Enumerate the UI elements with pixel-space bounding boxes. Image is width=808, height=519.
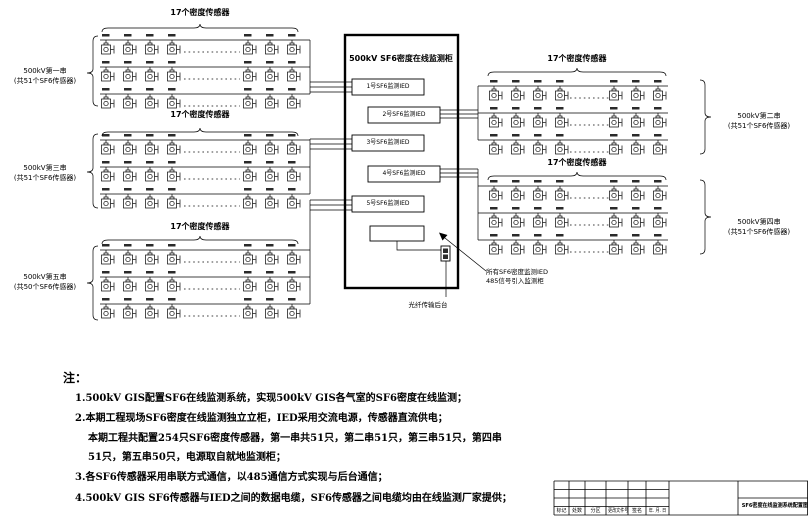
sf6-sensor-icon [124, 88, 137, 108]
sf6-sensor-icon [610, 207, 623, 227]
comm-box [370, 226, 424, 241]
sf6-sensor-icon [654, 234, 667, 254]
sf6-sensor-icon [124, 61, 137, 81]
drawing-sheet: 17个密度传感器 17个密度传感器 17个密度传感器 17个密度传感器 17个密… [0, 0, 808, 519]
fiber-note: 光纤传输后台 [394, 299, 462, 309]
sf6-sensor-icon [244, 188, 257, 208]
sf6-sensor-icon [654, 134, 667, 154]
ied-3-label: 3号SF6监测IED [352, 135, 424, 151]
group-1-count: (共51个SF6传感器) [2, 76, 88, 86]
note-line-2c: 51只，第五串50只，电源取自就地监测柜； [88, 448, 286, 463]
drawing-title: SF6密度在线监测系统配置图 [742, 498, 805, 514]
sf6-sensor-icon [244, 134, 257, 154]
sf6-sensor-icon [266, 161, 279, 181]
sf6-sensor-icon [610, 107, 623, 127]
sf6-sensor-icon [512, 234, 525, 254]
side-brace [87, 246, 98, 320]
sf6-sensor-icon [168, 161, 181, 181]
note-line-1: 1.500kV GIS配置SF6在线监测系统，实现500kV GIS各气室的SF… [75, 389, 467, 404]
sf6-sensor-icon [124, 298, 137, 318]
ied-4-label: 4号SF6监测IED [368, 166, 440, 182]
sf6-sensor-icon [490, 107, 503, 127]
sensor-group-5 [87, 200, 352, 320]
sf6-sensor-icon [490, 134, 503, 154]
group-3-count: (共51个SF6传感器) [2, 173, 88, 183]
group-1-top-label: 17个密度传感器 [150, 7, 250, 18]
group-4-name: 500kV第四串 [714, 217, 804, 227]
group-4-count: (共51个SF6传感器) [714, 227, 804, 237]
sf6-sensor-icon [632, 80, 645, 100]
sf6-sensor-icon [632, 180, 645, 200]
sf6-sensor-icon [244, 271, 257, 291]
top-brace [488, 68, 666, 76]
group-2-top-label: 17个密度传感器 [527, 53, 627, 64]
sf6-sensor-icon [244, 161, 257, 181]
note-line-3: 3.各SF6传感器采用串联方式通信，以485通信方式实现与后台通信； [75, 468, 388, 483]
converter-mark [443, 255, 448, 260]
sf6-sensor-icon [632, 134, 645, 154]
sf6-sensor-icon [512, 180, 525, 200]
sf6-sensor-icon [266, 134, 279, 154]
sf6-sensor-icon [102, 88, 115, 108]
sf6-sensor-icon [146, 34, 159, 54]
sf6-sensor-icon [632, 234, 645, 254]
sensor-group-2 [440, 68, 711, 154]
top-brace [102, 24, 298, 32]
sensor-group-4 [440, 169, 711, 254]
sf6-sensor-icon [610, 180, 623, 200]
sf6-sensor-icon [490, 207, 503, 227]
sf6-sensor-icon [556, 180, 569, 200]
sensor-group-3 [87, 128, 352, 208]
titleblock-col-zone: 分区 [585, 507, 606, 516]
sf6-sensor-icon [288, 34, 301, 54]
group-5-top-label: 17个密度传感器 [150, 221, 250, 232]
titleblock-col-sign: 签名 [628, 507, 646, 516]
cabinet-title: 500kV SF6密度在线监测柜 [347, 53, 455, 64]
titleblock-col-qty: 处数 [569, 507, 585, 516]
group-5-count: (共50个SF6传感器) [2, 282, 88, 292]
sf6-sensor-icon [266, 188, 279, 208]
sf6-sensor-icon [534, 207, 547, 227]
annotation-line-2: 485信号引入监测柜 [486, 275, 544, 285]
sf6-sensor-icon [288, 298, 301, 318]
group-3-top-label: 17个密度传感器 [150, 109, 250, 120]
sf6-sensor-icon [102, 244, 115, 264]
group-5-name: 500kV第五串 [2, 272, 88, 282]
sf6-sensor-icon [102, 34, 115, 54]
sf6-sensor-icon [556, 107, 569, 127]
group-2-name: 500kV第二串 [714, 111, 804, 121]
sf6-sensor-icon [288, 161, 301, 181]
sf6-sensor-icon [266, 244, 279, 264]
sf6-sensor-icon [632, 207, 645, 227]
sf6-sensor-icon [146, 134, 159, 154]
sf6-sensor-icon [534, 80, 547, 100]
sf6-sensor-icon [146, 88, 159, 108]
group-4-top-label: 17个密度传感器 [527, 157, 627, 168]
sf6-sensor-icon [534, 234, 547, 254]
sf6-sensor-icon [654, 107, 667, 127]
sf6-sensor-icon [168, 271, 181, 291]
sf6-sensor-icon [146, 244, 159, 264]
sf6-sensor-icon [512, 207, 525, 227]
sf6-sensor-icon [288, 244, 301, 264]
sf6-sensor-icon [288, 271, 301, 291]
note-line-4: 4.500kV GIS SF6传感器与IED之间的数据电缆，SF6传感器之间电缆… [75, 489, 512, 504]
side-brace [87, 36, 98, 106]
top-brace [488, 172, 666, 180]
sf6-sensor-icon [124, 134, 137, 154]
sf6-sensor-icon [610, 80, 623, 100]
sf6-sensor-icon [168, 134, 181, 154]
sf6-sensor-icon [610, 234, 623, 254]
side-brace [700, 180, 711, 254]
converter-mark [443, 249, 448, 254]
sf6-sensor-icon [244, 34, 257, 54]
sf6-sensor-icon [512, 80, 525, 100]
sf6-sensor-icon [654, 180, 667, 200]
sf6-sensor-icon [102, 271, 115, 291]
sf6-sensor-icon [288, 61, 301, 81]
ied-5-label: 5号SF6监测IED [352, 196, 424, 212]
sf6-sensor-icon [288, 88, 301, 108]
notes-heading: 注： [63, 369, 87, 386]
sf6-sensor-icon [266, 298, 279, 318]
note-line-2b: 本期工程共配置254只SF6密度传感器，第一串共51只，第二串51只，第三串51… [88, 429, 502, 444]
sf6-sensor-icon [490, 180, 503, 200]
sf6-sensor-icon [556, 134, 569, 154]
sf6-sensor-icon [556, 80, 569, 100]
sf6-sensor-icon [146, 161, 159, 181]
sf6-sensor-icon [288, 134, 301, 154]
sf6-sensor-icon [168, 88, 181, 108]
sf6-sensor-icon [124, 271, 137, 291]
sf6-sensor-icon [266, 34, 279, 54]
sf6-sensor-icon [654, 207, 667, 227]
group-2-count: (共51个SF6传感器) [714, 121, 804, 131]
sf6-sensor-icon [168, 61, 181, 81]
sf6-sensor-icon [610, 134, 623, 154]
sf6-sensor-icon [146, 298, 159, 318]
titleblock-col-mark: 标记 [554, 507, 569, 516]
sf6-sensor-icon [288, 188, 301, 208]
sf6-sensor-icon [654, 80, 667, 100]
sf6-sensor-icon [556, 207, 569, 227]
sf6-sensor-icon [534, 180, 547, 200]
sf6-sensor-icon [490, 80, 503, 100]
side-brace [87, 134, 98, 208]
sf6-sensor-icon [244, 88, 257, 108]
titleblock-col-change: 更改文件号 [608, 507, 626, 516]
sf6-sensor-icon [244, 298, 257, 318]
sf6-sensor-icon [124, 34, 137, 54]
sf6-sensor-icon [490, 234, 503, 254]
sf6-sensor-icon [168, 34, 181, 54]
sf6-sensor-icon [102, 134, 115, 154]
sf6-sensor-icon [512, 107, 525, 127]
sf6-sensor-icon [266, 61, 279, 81]
sf6-sensor-icon [244, 244, 257, 264]
sf6-sensor-icon [534, 107, 547, 127]
side-brace [700, 80, 711, 154]
sf6-sensor-icon [102, 188, 115, 208]
note-line-2: 2.本期工程现场SF6密度在线监测独立立柜，IED采用交流电源，传感器直流供电； [75, 409, 448, 424]
sf6-sensor-icon [102, 61, 115, 81]
sf6-sensor-icon [146, 61, 159, 81]
sf6-sensor-icon [124, 161, 137, 181]
sf6-sensor-icon [146, 271, 159, 291]
sf6-sensor-icon [632, 107, 645, 127]
ied-1-label: 1号SF6监测IED [352, 79, 424, 95]
group-1-name: 500kV第一串 [2, 66, 88, 76]
sf6-sensor-icon [146, 188, 159, 208]
sf6-sensor-icon [244, 61, 257, 81]
sf6-sensor-icon [124, 244, 137, 264]
ied-2-label: 2号SF6监测IED [368, 107, 440, 123]
group-3-name: 500kV第三串 [2, 163, 88, 173]
top-brace [102, 236, 298, 244]
sf6-sensor-icon [266, 271, 279, 291]
titleblock-col-date: 年. 月. 日 [648, 507, 667, 516]
sf6-sensor-icon [102, 298, 115, 318]
sf6-sensor-icon [556, 234, 569, 254]
sf6-sensor-icon [168, 298, 181, 318]
sf6-sensor-icon [102, 161, 115, 181]
sf6-sensor-icon [512, 134, 525, 154]
sf6-sensor-icon [534, 134, 547, 154]
sf6-sensor-icon [168, 244, 181, 264]
sf6-sensor-icon [168, 188, 181, 208]
sf6-sensor-icon [124, 188, 137, 208]
sensor-group-1 [87, 24, 352, 108]
sf6-sensor-icon [266, 88, 279, 108]
